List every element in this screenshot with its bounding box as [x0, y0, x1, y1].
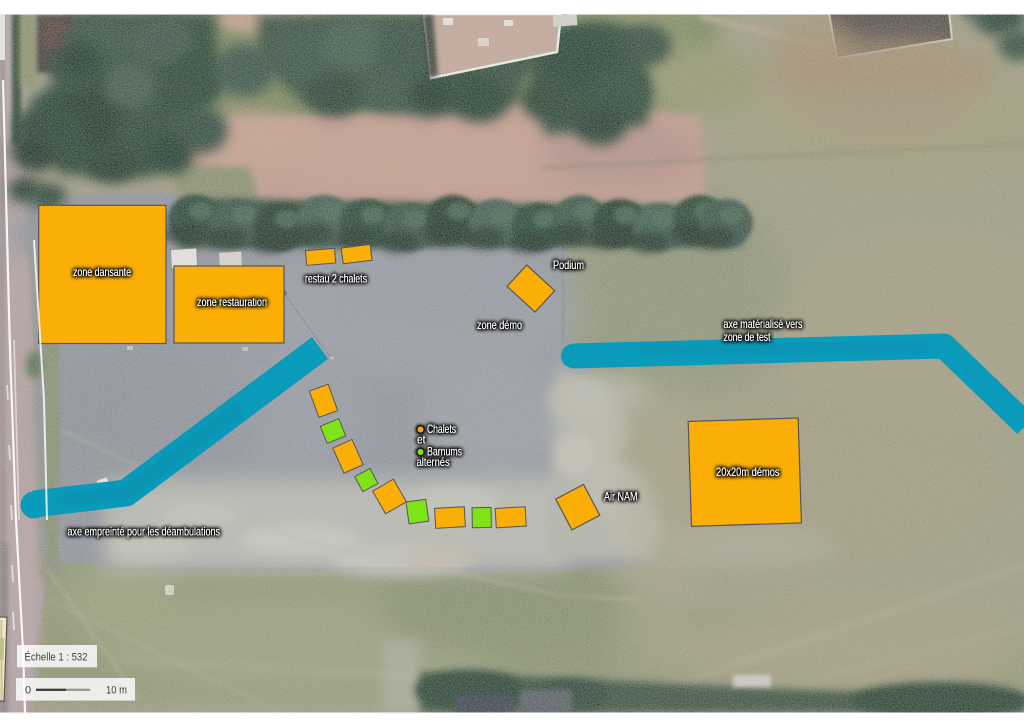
svg-text:restau 2 chalets: restau 2 chalets — [305, 272, 367, 286]
svg-text:zone de test: zone de test — [724, 330, 771, 344]
svg-text:Échelle 1 : 532: Échelle 1 : 532 — [25, 651, 88, 664]
svg-text:10 m: 10 m — [106, 685, 127, 697]
svg-text:alternés: alternés — [417, 455, 450, 469]
svg-text:Podium: Podium — [553, 258, 584, 272]
svg-text:20x20m démos: 20x20m démos — [716, 465, 780, 479]
svg-text:zone dansante: zone dansante — [73, 265, 131, 279]
svg-text:Chalets: Chalets — [427, 422, 456, 436]
svg-text:zone démo: zone démo — [477, 318, 522, 332]
svg-text:axe matérialisé vers: axe matérialisé vers — [724, 317, 803, 331]
svg-text:0: 0 — [25, 685, 31, 697]
svg-text:et: et — [417, 433, 426, 447]
svg-text:Air NAM: Air NAM — [604, 490, 638, 504]
svg-text:axe empreinté pour les déambul: axe empreinté pour les déambulations — [68, 525, 221, 539]
svg-text:zone restauration: zone restauration — [197, 295, 267, 309]
